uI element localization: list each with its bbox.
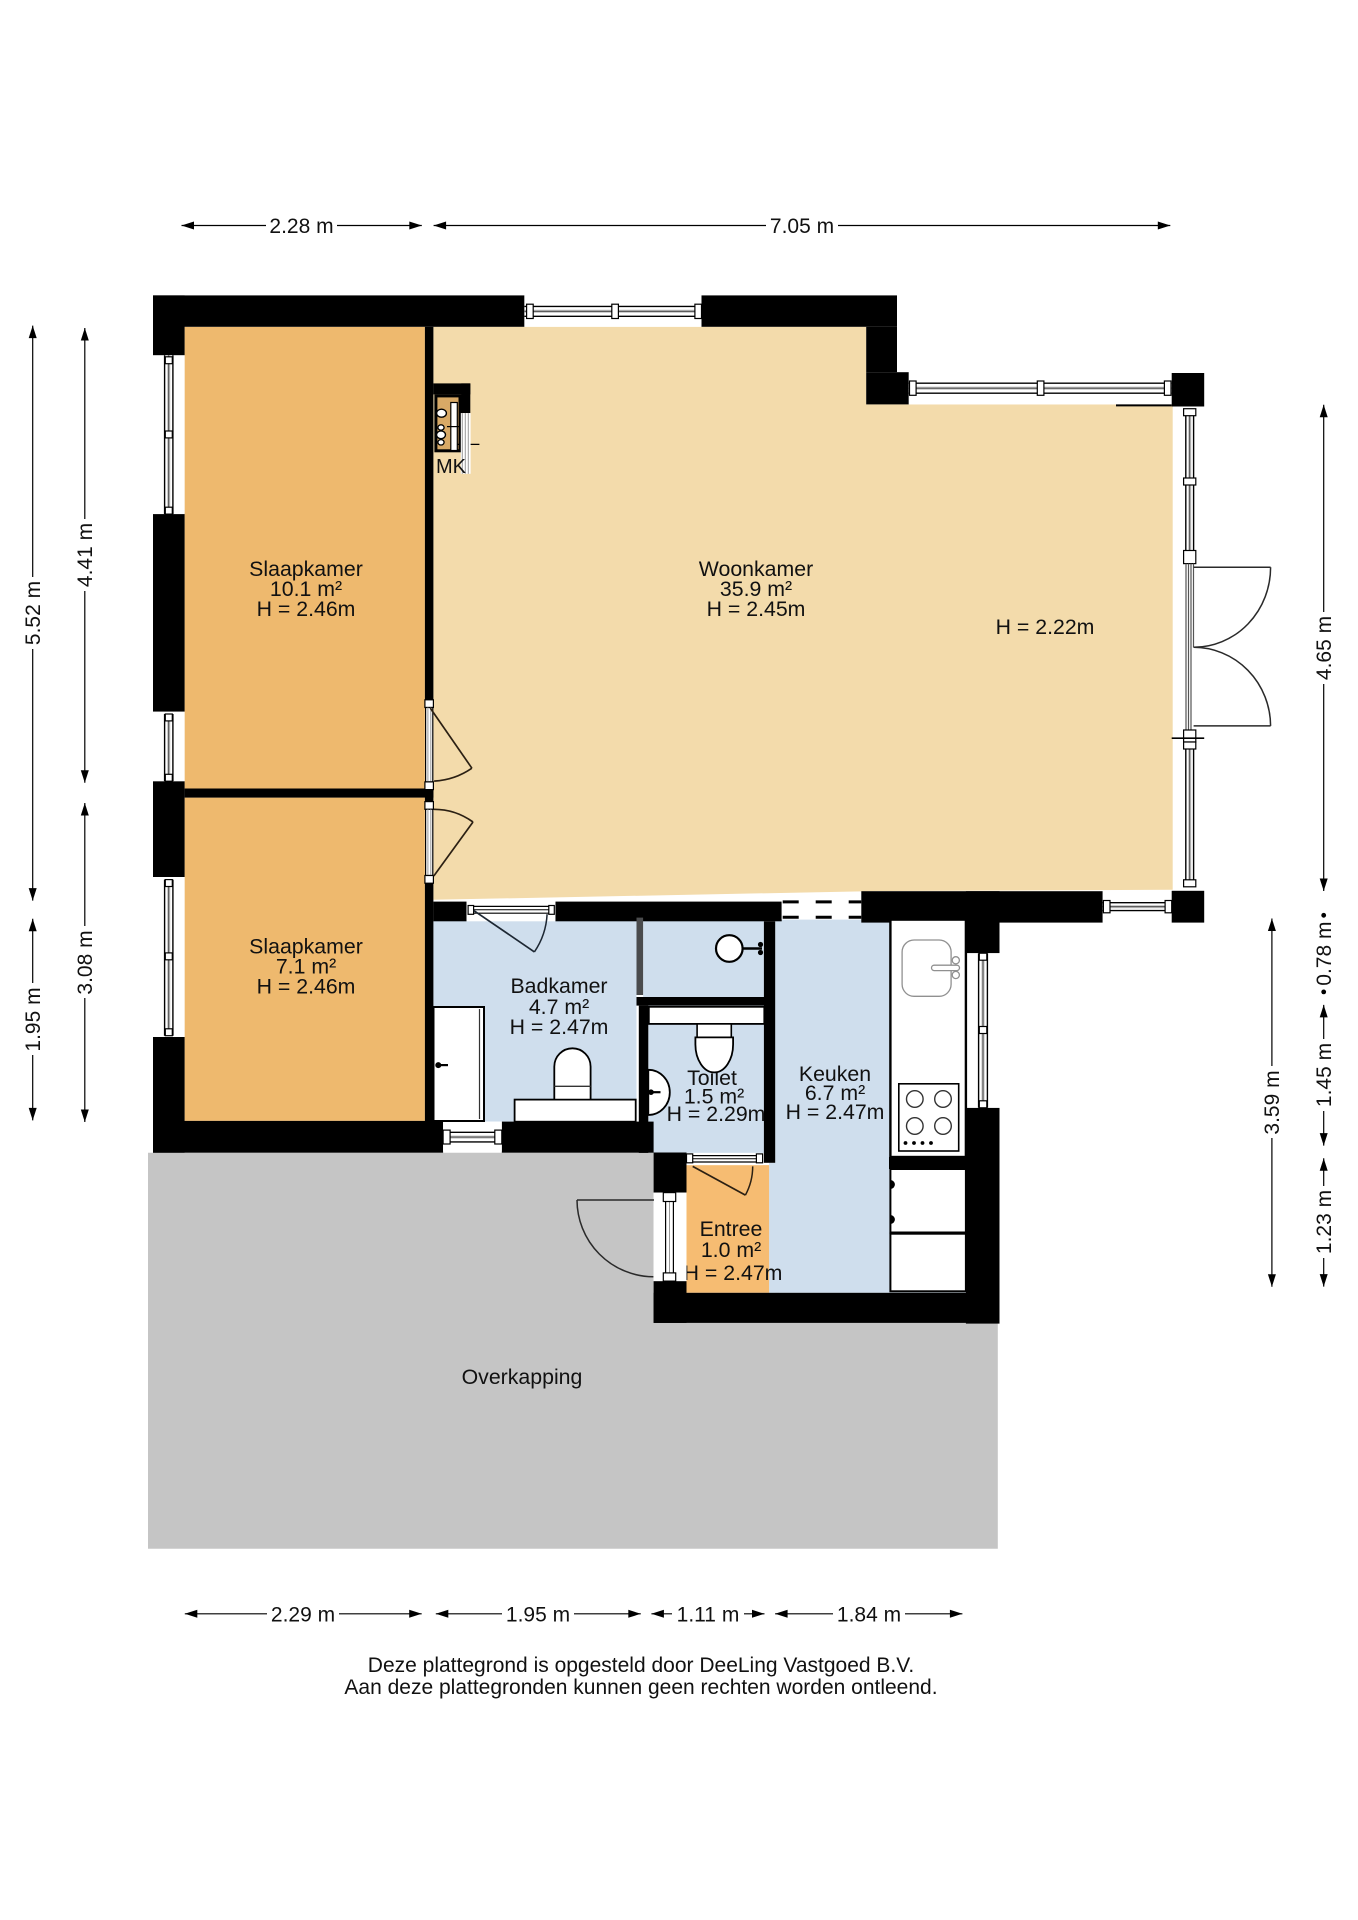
- svg-text:4.41 m: 4.41 m: [74, 523, 97, 587]
- svg-text:1.23 m: 1.23 m: [1313, 1190, 1336, 1254]
- svg-text:1.95 m: 1.95 m: [506, 1603, 570, 1626]
- svg-text:1.45 m: 1.45 m: [1313, 1043, 1336, 1107]
- svg-text:1.0 m²: 1.0 m²: [701, 1238, 761, 1262]
- svg-text:H = 2.45m: H = 2.45m: [707, 597, 806, 621]
- svg-text:H = 2.47m: H = 2.47m: [684, 1261, 783, 1285]
- svg-text:H = 2.46m: H = 2.46m: [257, 975, 356, 999]
- svg-text:H = 2.46m: H = 2.46m: [257, 597, 356, 621]
- svg-text:3.08 m: 3.08 m: [74, 930, 97, 994]
- svg-text:7.05 m: 7.05 m: [770, 215, 834, 238]
- svg-text:0.78 m: 0.78 m: [1313, 921, 1336, 985]
- svg-text:Deze plattegrond is opgesteld: Deze plattegrond is opgesteld door DeeLi…: [368, 1654, 914, 1677]
- svg-text:1.84 m: 1.84 m: [837, 1603, 901, 1626]
- svg-text:H = 2.29m: H = 2.29m: [667, 1102, 766, 1126]
- svg-text:H = 2.47m: H = 2.47m: [786, 1100, 885, 1124]
- svg-text:4.65 m: 4.65 m: [1313, 616, 1336, 680]
- svg-text:2.28 m: 2.28 m: [269, 215, 333, 238]
- svg-text:2.29 m: 2.29 m: [271, 1603, 335, 1626]
- svg-text:Overkapping: Overkapping: [462, 1365, 583, 1389]
- svg-text:5.52 m: 5.52 m: [22, 581, 45, 645]
- svg-text:H = 2.47m: H = 2.47m: [510, 1015, 609, 1039]
- svg-text:MK: MK: [436, 456, 467, 478]
- svg-text:H = 2.22m: H = 2.22m: [996, 615, 1095, 639]
- svg-text:1.11 m: 1.11 m: [677, 1603, 740, 1626]
- svg-text:1.95 m: 1.95 m: [22, 987, 45, 1051]
- svg-text:3.59 m: 3.59 m: [1261, 1070, 1284, 1134]
- svg-text:Aan deze plattegronden kunnen: Aan deze plattegronden kunnen geen recht…: [344, 1676, 937, 1699]
